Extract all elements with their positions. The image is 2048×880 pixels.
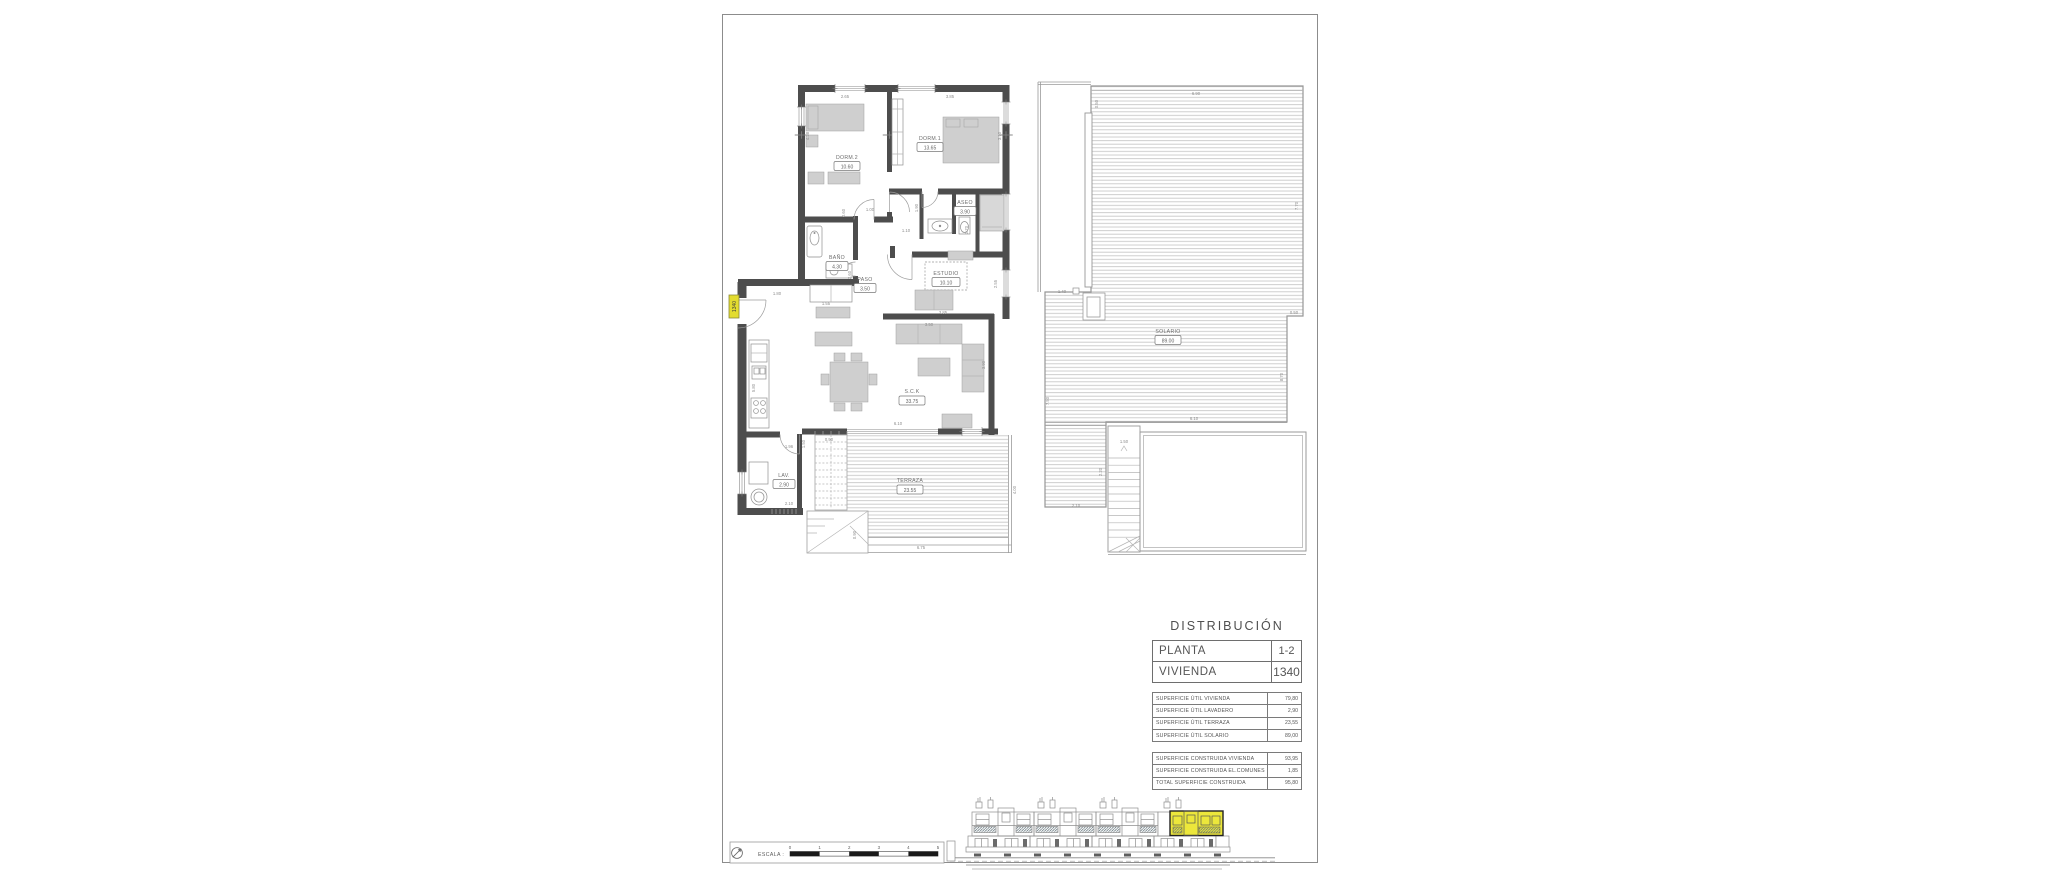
highlighted-unit: [1170, 811, 1223, 836]
distribution-title: DISTRIBUCIÓN: [1152, 619, 1302, 634]
dimension-label: 3.90: [981, 360, 986, 369]
table-row: SUPERFICIE ÚTIL LAVADERO 2,90: [1153, 704, 1301, 716]
row-label: SUPERFICIE ÚTIL LAVADERO: [1153, 708, 1267, 714]
dimension-label: 1.00: [866, 207, 875, 212]
dimension-label: 0.60: [841, 208, 846, 217]
room-area: 13.65: [924, 145, 937, 151]
dimension-label: 3.85: [946, 94, 955, 99]
room-name: ESTUDIO: [933, 271, 958, 277]
room-label-estudio: ESTUDIO 10.10: [932, 271, 960, 287]
room-name: DORM.2: [836, 155, 858, 161]
row-value: 79,80: [1267, 693, 1301, 704]
row-label: SUPERFICIE CONSTRUIDA VIVIENDA: [1153, 756, 1267, 762]
row-value: 95,80: [1267, 778, 1301, 789]
room-label-aseo: ASEO 3.90: [954, 200, 976, 216]
dimension-label: 3.10: [997, 131, 1002, 140]
window-dorm1-right: [1002, 100, 1011, 127]
dimension-label: 2.65: [841, 94, 850, 99]
screenshot-canvas: { "plan": { "rooms": [ {"name": "DORM.2"…: [0, 0, 2048, 880]
room-name: BAÑO: [829, 254, 845, 261]
dimension-label: 3.85: [939, 310, 948, 315]
dining-set: [821, 353, 877, 411]
dimension-label: 1.80: [773, 291, 782, 296]
dimension-label: 6.10: [1190, 416, 1199, 421]
window-dorm2-left: [797, 105, 806, 129]
solario-side-wall: [1085, 113, 1092, 287]
dimension-label: 6.75: [917, 545, 926, 550]
dimension-label: 2.60: [847, 270, 852, 279]
dorm1-furniture: [892, 99, 999, 165]
window-living-terraza: [960, 427, 985, 436]
room-label-paso: PASO 3.50: [854, 277, 876, 293]
dimension-label: 0.90: [852, 530, 857, 539]
terraza-landing: [807, 511, 868, 553]
row-value: 2,90: [1267, 705, 1301, 716]
distribution-table: DISTRIBUCIÓN PLANTA 1-2 VIVIENDA 1340 SU…: [1152, 619, 1302, 790]
window-dorm2-top: [833, 84, 868, 93]
dimension-label: 4.00: [1012, 485, 1017, 494]
table-row: SUPERFICIE CONSTRUIDA EL.COMUNES 1,85: [1153, 764, 1301, 776]
room-name: ASEO: [957, 200, 973, 206]
room-area: 2.90: [779, 482, 789, 488]
dimension-label: 7.70: [1294, 201, 1299, 210]
room-label-bano: BAÑO 4.30: [826, 254, 848, 271]
scale-bar: ESCALA : 0 1 2 3 4 5: [730, 842, 944, 863]
dimension-label: 2.70: [964, 225, 969, 234]
room-area: 89.00: [1162, 338, 1175, 344]
dimension-label: 6.10: [894, 421, 903, 426]
table-row: SUPERFICIE CONSTRUIDA VIVIENDA 93,95: [1153, 753, 1301, 764]
dimension-label: 2.20: [1098, 467, 1103, 476]
room-name: SOLARIO: [1155, 329, 1180, 335]
dimension-label: 7.50: [1045, 396, 1050, 405]
sofa-set: [896, 324, 984, 428]
entry-closet: [810, 285, 852, 318]
room-label-terraza: TERRAZA 23.55: [897, 478, 924, 494]
dimension-label: 1.50: [1120, 439, 1129, 444]
scale-label: ESCALA :: [758, 852, 784, 858]
row-value: 23,55: [1267, 718, 1301, 729]
room-area: 10.60: [841, 164, 854, 170]
building-elevation: [947, 797, 1275, 869]
room-label-solario: SOLARIO 89.00: [1155, 329, 1181, 345]
solario-stairs: [1108, 426, 1140, 552]
dimension-label: 4.28: [805, 131, 810, 140]
floor-plan: DORM.2 10.60 DORM.1 13.65 ASEO 3.90 BAÑO…: [729, 82, 1306, 555]
room-label-lavadero: LAV. 2.90: [773, 473, 795, 489]
dimension-label: 1.96: [785, 444, 794, 449]
dimension-label: 0.90: [825, 437, 834, 442]
dimension-label: 5.80: [751, 383, 756, 392]
row-value: 1,85: [1267, 765, 1301, 776]
row-label: SUPERFICIE ÚTIL SOLARIO: [1153, 733, 1267, 739]
row-value: 89,00: [1267, 730, 1301, 741]
table-row: SUPERFICIE ÚTIL TERRAZA 23,55: [1153, 717, 1301, 729]
terraza-deck: [847, 435, 1012, 553]
window-lav-left: [738, 470, 747, 497]
table-row: SUPERFICIE ÚTIL VIVIENDA 79,80: [1153, 693, 1301, 704]
dimension-label: 6.90: [1192, 91, 1201, 96]
vivienda-value: 1340: [1271, 662, 1301, 682]
table-row: VIVIENDA 1340: [1153, 661, 1301, 682]
room-name: PASO: [857, 277, 872, 283]
row-label: SUPERFICIE ÚTIL VIVIENDA: [1153, 696, 1267, 702]
dimension-label: 1.90: [914, 203, 919, 212]
room-area: 3.50: [860, 286, 870, 292]
row-label: SUPERFICIE ÚTIL TERRAZA: [1153, 720, 1267, 726]
row-value: 93,95: [1267, 753, 1301, 764]
room-name: DORM.1: [919, 136, 941, 142]
dimension-label: 1.10: [902, 228, 911, 233]
table-row: TOTAL SUPERFICIE CONSTRUIDA 95,80: [1153, 777, 1301, 789]
dimension-label: 0.50: [1094, 99, 1099, 108]
scale-segments: [790, 852, 938, 857]
dimension-label: 8.70: [1279, 372, 1284, 381]
unit-tag: 1340: [729, 295, 739, 318]
plan-sheet-page: DORM.2 10.60 DORM.1 13.65 ASEO 3.90 BAÑO…: [722, 14, 1318, 863]
elevation-side-wall: [947, 841, 955, 861]
row-label: SUPERFICIE CONSTRUIDA EL.COMUNES: [1153, 768, 1267, 774]
room-name: S.C.K: [904, 389, 919, 395]
room-label-salon: S.C.K 33.75: [899, 389, 925, 405]
dimension-label: 2.55: [993, 279, 998, 288]
room-area: 10.10: [940, 280, 953, 286]
room-area: 23.55: [904, 488, 917, 494]
terraza-stairs: [815, 431, 847, 510]
room-area: 3.90: [960, 209, 970, 215]
planta-value: 1-2: [1271, 641, 1301, 661]
superficie-construida-table: SUPERFICIE CONSTRUIDA VIVIENDA 93,95 SUP…: [1152, 752, 1302, 790]
table-row: PLANTA 1-2: [1153, 641, 1301, 661]
room-label-dorm2: DORM.2 10.60: [834, 155, 860, 171]
dimension-label: 3.50: [925, 322, 934, 327]
table-row: SUPERFICIE ÚTIL SOLARIO 89,00: [1153, 729, 1301, 741]
dimension-label: 0.50: [1290, 310, 1299, 315]
room-area: 4.30: [832, 264, 842, 270]
dimension-label: 1.50: [801, 439, 806, 448]
room-label-dorm1: DORM.1 13.65: [917, 136, 943, 152]
planta-label: PLANTA: [1153, 645, 1271, 657]
window-estudio-right: [1002, 268, 1011, 300]
window-dorm1-top: [896, 84, 938, 93]
room-area: 33.75: [906, 399, 919, 405]
room-name: TERRAZA: [897, 478, 924, 484]
vivienda-label: VIVIENDA: [1153, 666, 1271, 678]
room-name: LAV.: [778, 473, 790, 479]
dimension-label: 2.10: [785, 501, 794, 506]
dimension-label: 1.55: [822, 301, 831, 306]
dorm2-furniture: [806, 104, 864, 184]
dimension-label: 2.10: [1072, 503, 1081, 508]
unit-tag-number: 1340: [732, 301, 738, 312]
dimension-label: 1.40: [1058, 289, 1067, 294]
superficie-util-table: SUPERFICIE ÚTIL VIVIENDA 79,80 SUPERFICI…: [1152, 692, 1302, 742]
pillar: [1073, 288, 1079, 294]
row-label: TOTAL SUPERFICIE CONSTRUIDA: [1153, 780, 1267, 786]
planta-vivienda-table: PLANTA 1-2 VIVIENDA 1340: [1152, 640, 1302, 683]
